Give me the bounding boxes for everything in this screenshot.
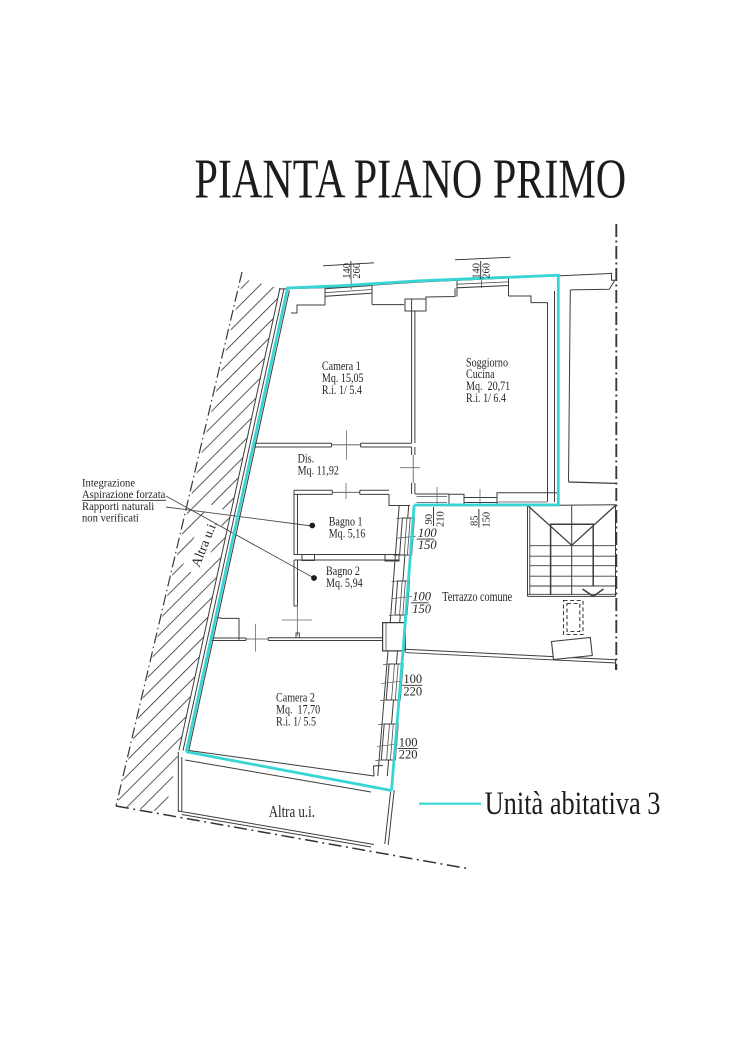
svg-text:Altra u.i.: Altra u.i. (269, 803, 315, 821)
svg-text:R.i. 1/ 5.5: R.i. 1/ 5.5 (276, 715, 316, 728)
svg-text:Terrazzo comune: Terrazzo comune (442, 589, 512, 605)
svg-text:150: 150 (481, 512, 492, 528)
svg-text:210: 210 (436, 511, 447, 527)
svg-text:PIANTA PIANO PRIMO: PIANTA PIANO PRIMO (195, 148, 627, 210)
svg-text:Mq. 5,16: Mq. 5,16 (329, 528, 366, 541)
svg-text:260: 260 (482, 263, 493, 279)
svg-text:Aspirazione forzata: Aspirazione forzata (82, 489, 165, 502)
svg-text:150: 150 (418, 538, 438, 552)
svg-text:R.i. 1/ 5.4: R.i. 1/ 5.4 (322, 384, 362, 397)
svg-text:220: 220 (403, 684, 422, 698)
svg-text:Mq. 5,94: Mq. 5,94 (326, 577, 363, 590)
svg-text:260: 260 (352, 263, 363, 279)
svg-text:non verificati: non verificati (82, 512, 139, 525)
svg-text:150: 150 (412, 602, 432, 616)
svg-text:Unità abitativa 3: Unità abitativa 3 (485, 785, 661, 821)
svg-text:220: 220 (399, 748, 418, 762)
svg-text:R.i. 1/ 6.4: R.i. 1/ 6.4 (466, 392, 506, 405)
svg-text:Mq. 11,92: Mq. 11,92 (298, 465, 339, 478)
